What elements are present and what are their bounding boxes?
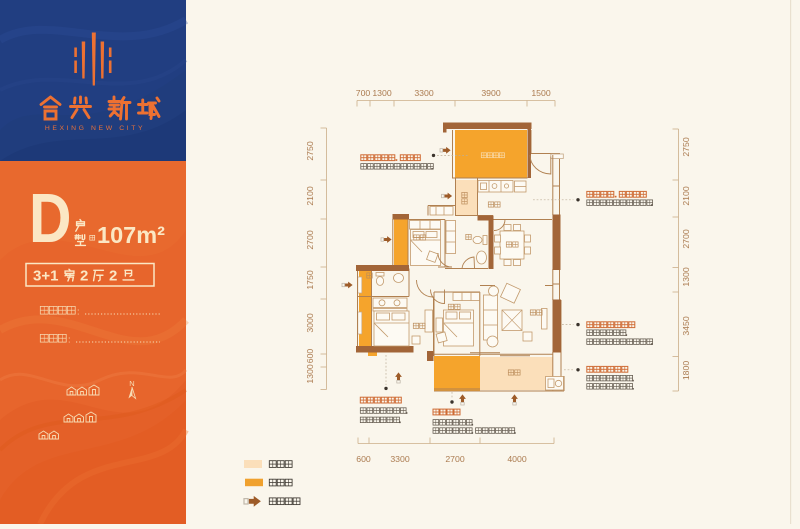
- svg-text:3300: 3300: [390, 454, 409, 464]
- svg-text:2700: 2700: [681, 229, 691, 248]
- svg-text:2700: 2700: [445, 454, 464, 464]
- svg-text:4000: 4000: [507, 454, 526, 464]
- svg-text:2100: 2100: [305, 186, 315, 205]
- svg-text:N: N: [129, 379, 134, 388]
- svg-text:1300: 1300: [681, 267, 691, 286]
- svg-text:D: D: [29, 178, 71, 257]
- svg-text:600: 600: [356, 454, 371, 464]
- svg-text:3+1: 3+1: [33, 268, 58, 285]
- svg-text:3300: 3300: [414, 88, 433, 98]
- svg-text::: :: [77, 307, 80, 317]
- svg-text:HEXING NEW CITY: HEXING NEW CITY: [45, 125, 145, 132]
- svg-text:1500: 1500: [531, 88, 550, 98]
- svg-text:1750: 1750: [305, 270, 315, 289]
- svg-text:3900: 3900: [481, 88, 500, 98]
- svg-text:1300: 1300: [372, 88, 391, 98]
- svg-text::: :: [68, 335, 71, 345]
- svg-text:2: 2: [80, 268, 88, 285]
- svg-text:2700: 2700: [305, 230, 315, 249]
- svg-text:1800: 1800: [681, 361, 691, 380]
- svg-text:107m²: 107m²: [97, 222, 165, 248]
- svg-text:2750: 2750: [305, 141, 315, 160]
- svg-text:3450: 3450: [681, 316, 691, 335]
- svg-text:1300: 1300: [305, 364, 315, 383]
- svg-text:600: 600: [305, 349, 315, 364]
- svg-text:3000: 3000: [305, 313, 315, 332]
- svg-text:2: 2: [109, 268, 117, 285]
- svg-text:2750: 2750: [681, 137, 691, 156]
- svg-text:700: 700: [356, 88, 371, 98]
- svg-text:2100: 2100: [681, 186, 691, 205]
